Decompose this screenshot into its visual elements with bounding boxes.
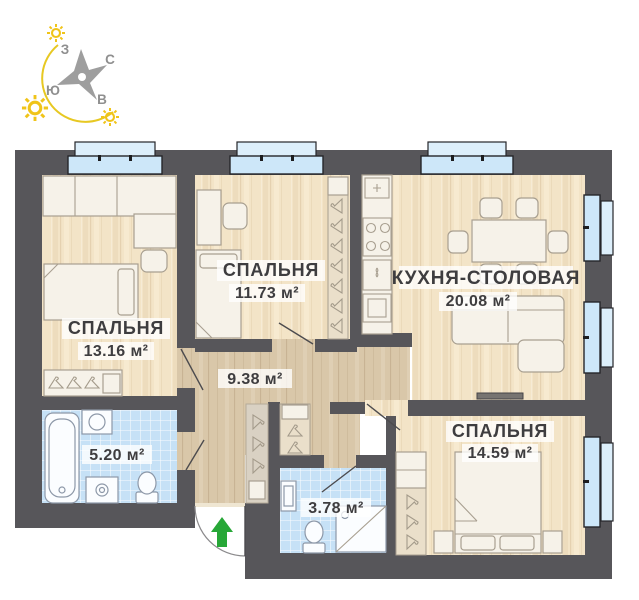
wall <box>350 333 412 347</box>
wall <box>245 553 396 579</box>
compass-east-label: В <box>97 92 107 107</box>
nightstand-icon <box>434 531 453 553</box>
wall <box>15 150 42 528</box>
door-gap-floor <box>177 432 195 470</box>
wardrobe-icon <box>43 176 176 216</box>
pillow-icon <box>118 269 134 315</box>
double-bed-icon <box>455 452 541 553</box>
closet-icon <box>328 177 348 339</box>
storage-box-icon <box>249 481 265 499</box>
window <box>583 437 613 527</box>
entry-corridor-floor <box>195 402 245 505</box>
desk-icon <box>134 214 176 248</box>
compass-south-label: Ю <box>46 83 60 98</box>
room-area: 3.78 м² <box>308 500 364 517</box>
sun-icon <box>47 24 65 42</box>
wall <box>356 455 388 468</box>
sun-icon <box>22 95 48 121</box>
shelf-icon <box>328 177 348 195</box>
bedroom-3-furniture <box>396 452 562 555</box>
wall <box>330 402 365 414</box>
pillow-icon <box>461 536 495 550</box>
window <box>583 195 613 261</box>
chair-icon <box>141 250 167 272</box>
room-name: КУХНЯ-СТОЛОВАЯ <box>392 268 580 289</box>
window <box>230 142 323 174</box>
sink-icon <box>281 481 296 511</box>
room-area: 11.73 м² <box>235 285 299 302</box>
desk-icon <box>197 190 221 245</box>
entry-door <box>195 503 245 556</box>
chair-icon <box>516 198 538 218</box>
bathtub-icon <box>45 413 79 503</box>
window <box>421 142 513 174</box>
room-name: СПАЛЬНЯ <box>223 260 319 280</box>
washing-machine-icon <box>86 477 118 503</box>
wall <box>268 455 324 468</box>
room-area: 13.16 м² <box>84 343 149 360</box>
tv-icon <box>477 393 523 399</box>
chair-icon <box>223 203 247 229</box>
wall <box>195 339 272 352</box>
floor-plan-page: З С Ю В <box>0 0 639 600</box>
entry-arrow-icon <box>211 517 233 547</box>
compass-north-label: С <box>105 52 115 67</box>
wall <box>350 175 362 347</box>
window <box>583 302 613 373</box>
wall <box>245 503 270 558</box>
wall <box>42 396 195 410</box>
pillow-icon <box>500 536 534 550</box>
dining-table-icon <box>472 220 546 262</box>
wall <box>15 503 195 528</box>
wall <box>177 175 195 348</box>
chair-icon <box>448 231 468 253</box>
toilet-icon <box>136 472 158 503</box>
wall <box>408 400 588 416</box>
wall <box>388 555 612 579</box>
shelf-icon <box>282 405 308 419</box>
nightstand-icon <box>543 531 562 553</box>
sink-icon <box>82 410 112 434</box>
room-name: СПАЛЬНЯ <box>452 421 548 441</box>
wall <box>386 416 396 555</box>
compass-west-label: З <box>61 42 69 57</box>
door-gap-floor <box>177 348 195 388</box>
room-area: 20.08 м² <box>446 293 511 310</box>
kitchen-counter <box>362 175 392 334</box>
wall <box>177 470 195 528</box>
chair-icon <box>480 198 502 218</box>
compass-star-center <box>78 73 86 81</box>
room-area: 9.38 м² <box>227 371 283 388</box>
compass: З С Ю В <box>22 24 119 126</box>
door-gap-floor <box>324 455 356 468</box>
room-area: 14.59 м² <box>468 445 533 462</box>
floor-plan: З С Ю В <box>0 0 639 600</box>
toilet-icon <box>303 521 325 553</box>
chair-icon <box>548 231 568 253</box>
storage-box-icon <box>103 374 120 393</box>
window <box>68 142 162 174</box>
room-area: 5.20 м² <box>89 447 145 464</box>
room-name: СПАЛЬНЯ <box>68 318 164 338</box>
sun-icon <box>101 108 119 126</box>
